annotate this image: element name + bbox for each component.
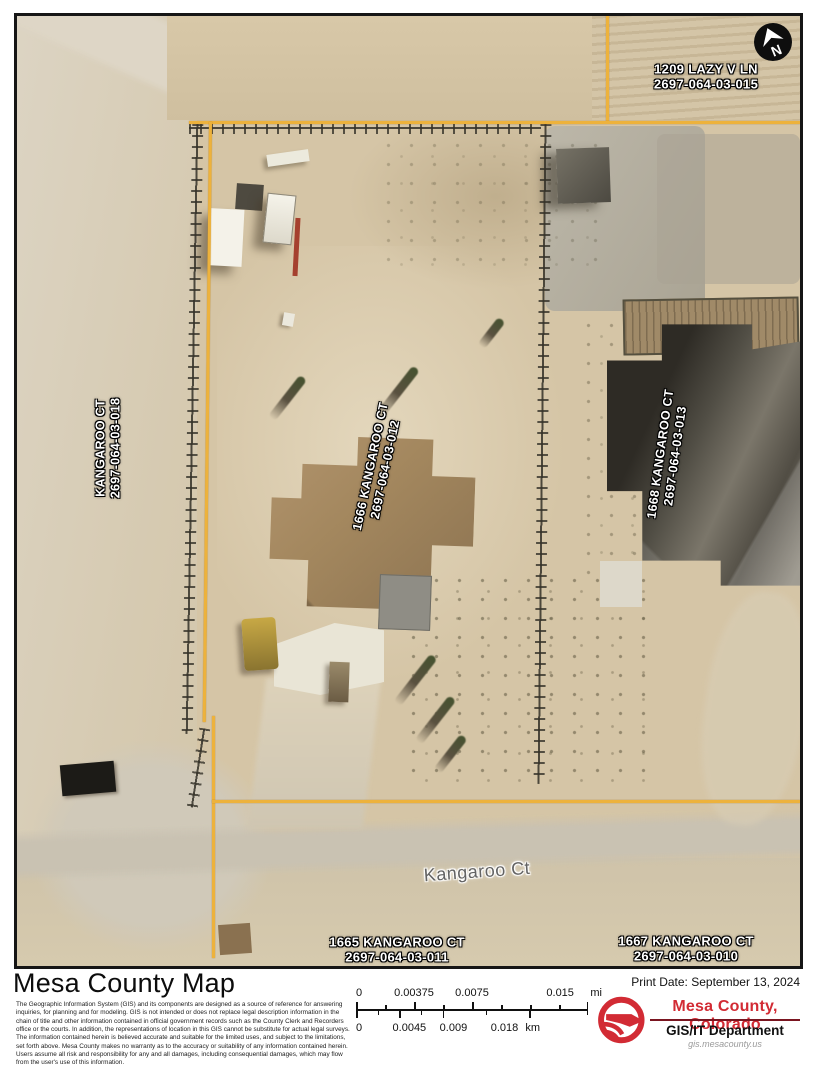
white-shed <box>208 208 245 267</box>
scale-tick <box>486 1011 488 1015</box>
scale-tick <box>443 1011 445 1018</box>
scale-tick <box>356 1011 358 1018</box>
parcel-boundary-line <box>203 122 212 722</box>
scale-km-label: 0 <box>356 1022 362 1034</box>
parcel-boundary-line <box>606 16 609 123</box>
small-brown-shed <box>218 923 252 955</box>
parcel-label-1668: 1668 KANGAROO CT 2697-064-03-013 <box>644 388 691 521</box>
print-date-value: September 13, 2024 <box>691 975 800 989</box>
parcel-boundary-line <box>189 121 800 124</box>
truck-on-driveway <box>328 662 349 703</box>
scale-tick <box>501 1005 503 1009</box>
scale-tick <box>443 1005 445 1009</box>
shrub-field-right <box>577 316 647 576</box>
scale-mi-label: 0.00375 <box>394 987 434 999</box>
parcel-address: 1209 LAZY V LN <box>654 62 758 77</box>
parcel-id: 2697-064-03-010 <box>618 949 754 964</box>
terrain-topleft-road <box>14 13 248 116</box>
parcel-label-kangaroo-018: KANGAROO CT 2697-064-03-018 <box>93 398 123 498</box>
cul-de-sac <box>32 741 272 951</box>
scale-tick <box>385 1005 387 1009</box>
fence-line-left <box>182 124 204 734</box>
parcel-boundary-line <box>212 800 800 803</box>
parcel-id: 2697-064-03-018 <box>108 398 123 498</box>
scale-tick <box>559 1005 561 1009</box>
terrain-right-gravel <box>657 134 800 284</box>
road-kangaroo-ct <box>14 808 803 883</box>
scale-km-label: 0.018 <box>491 1022 519 1034</box>
excavator <box>241 617 279 671</box>
shrub-field-central <box>402 571 652 786</box>
scale-tick <box>414 1002 416 1009</box>
scale-tick <box>587 1011 589 1015</box>
scale-tick <box>356 1002 358 1009</box>
scale-tick <box>421 1011 423 1015</box>
parcel-label-1665: 1665 KANGAROO CT 2697-064-03-011 <box>329 935 465 966</box>
scale-tick <box>399 1011 401 1018</box>
logo-divider <box>650 1019 800 1021</box>
mesa-county-logo-icon <box>596 994 650 1046</box>
parcel-id: 2697-064-03-011 <box>329 950 465 965</box>
print-date-label: Print Date: <box>631 975 688 989</box>
logo-dept-name: GIS/IT Department <box>648 1023 802 1038</box>
tree <box>477 317 505 349</box>
parcel-label-1667: 1667 KANGAROO CT 2697-064-03-010 <box>618 934 754 965</box>
disclaimer-paragraph-2: The information contained herein is beli… <box>16 1034 350 1067</box>
scale-tick <box>587 1002 589 1009</box>
scale-km-label: 0.0045 <box>393 1022 427 1034</box>
scale-bar-line <box>356 1009 588 1011</box>
parcel-address: 1665 KANGAROO CT <box>329 935 465 950</box>
fence-line-top <box>189 123 541 134</box>
scale-mi-label: 0.015 <box>546 987 574 999</box>
terrain-right-track <box>689 585 803 832</box>
scale-mi-label: 0 <box>356 987 362 999</box>
scale-mi-label: 0.0075 <box>455 987 489 999</box>
scale-tick <box>378 1011 380 1015</box>
page-title: Mesa County Map <box>13 968 235 999</box>
scale-km-unit: km <box>525 1022 540 1034</box>
parked-trailer <box>60 761 116 797</box>
shrub-field-top <box>377 136 607 266</box>
street-label-kangaroo-ct: Kangaroo Ct <box>423 858 531 886</box>
fence-line-left-lower <box>187 728 210 809</box>
parcel-id: 2697-064-03-015 <box>654 77 758 92</box>
house-1668-deck <box>623 296 800 355</box>
white-truck <box>262 193 296 246</box>
aerial-map: N 1209 LAZY V LN 2697-064-03-015 KANGARO… <box>14 13 803 969</box>
tree <box>268 375 307 422</box>
scale-bar: 0 0.00375 0.0075 0.015 mi 0 0.0045 0.009… <box>356 984 588 1040</box>
disclaimer-text: The Geographic Information System (GIS) … <box>16 1001 350 1068</box>
dark-shed <box>235 183 264 211</box>
north-arrow-icon: N <box>747 16 799 68</box>
mesa-county-logo-block: Mesa County, Colorado GIS/IT Department … <box>596 992 802 1050</box>
logo-url: gis.mesacounty.us <box>648 1039 802 1049</box>
well-marker <box>282 312 295 327</box>
scale-tick <box>472 1002 474 1009</box>
parcel-boundary-line <box>212 716 215 958</box>
parcel-address: 1667 KANGAROO CT <box>618 934 754 949</box>
scale-tick <box>529 1011 531 1018</box>
house-1666-driveway <box>274 623 384 695</box>
disclaimer-paragraph-1: The Geographic Information System (GIS) … <box>16 1001 350 1034</box>
scale-km-label: 0.009 <box>440 1022 468 1034</box>
parcel-label-1209: 1209 LAZY V LN 2697-064-03-015 <box>654 62 758 93</box>
parcel-address: KANGAROO CT <box>93 398 108 498</box>
crane-arm <box>292 218 300 276</box>
terrain-top-strip <box>167 16 617 120</box>
white-trailer <box>266 149 309 167</box>
driveway-connector <box>248 678 381 828</box>
scale-tick <box>530 1005 532 1009</box>
parcel-label-1666: 1666 KANGAROO CT 2697-064-03-012 <box>350 401 406 535</box>
